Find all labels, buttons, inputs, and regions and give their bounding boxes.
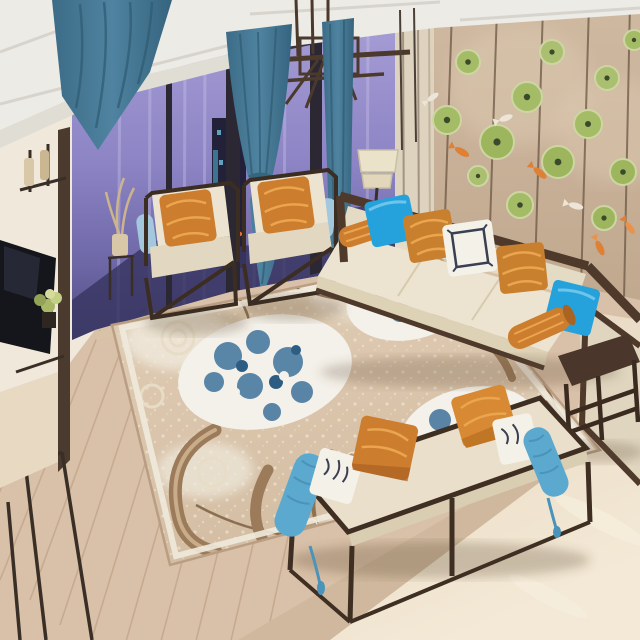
orange-brocade-pillow bbox=[496, 242, 549, 295]
tassel-tip bbox=[317, 581, 325, 595]
white-pillow bbox=[442, 219, 499, 277]
bench-shadow bbox=[290, 542, 590, 578]
tassel-tip bbox=[553, 526, 561, 538]
orange-pillow bbox=[351, 415, 419, 482]
lamp-shade-top bbox=[358, 150, 398, 172]
scene-canvas bbox=[0, 0, 640, 640]
living-room-photo bbox=[0, 0, 640, 640]
chair-pillow bbox=[257, 176, 316, 235]
lamp-shade-bottom bbox=[362, 174, 392, 188]
lotus-leaf bbox=[433, 106, 461, 134]
chair-pillow bbox=[159, 189, 218, 248]
